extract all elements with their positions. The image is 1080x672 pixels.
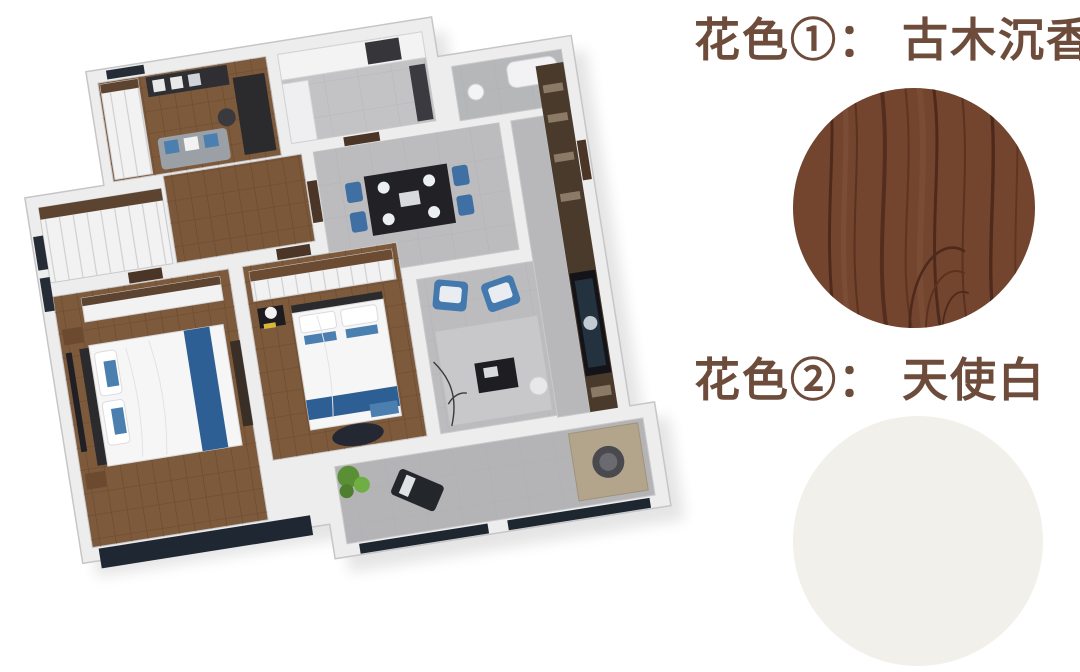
swatch2-label: 花色②：天使白 bbox=[694, 356, 1080, 407]
dining-chair bbox=[345, 181, 364, 203]
dining-chair bbox=[349, 211, 368, 233]
swatch1-prefix: 花色①： bbox=[694, 15, 886, 66]
nightstand bbox=[62, 327, 84, 346]
swatch1-name: 古木沉香 bbox=[902, 15, 1080, 66]
second-bedroom bbox=[242, 242, 427, 460]
armchair bbox=[432, 279, 468, 312]
swatch2-prefix: 花色②： bbox=[694, 355, 886, 406]
dining-chair bbox=[456, 194, 475, 216]
apartment bbox=[7, 0, 685, 614]
wood-grain-graphic bbox=[792, 87, 1036, 329]
bed bbox=[291, 291, 402, 430]
nightstand bbox=[85, 471, 107, 490]
floorplan-image bbox=[0, 0, 700, 667]
dining-chair bbox=[451, 164, 470, 186]
swatch2-white-circle bbox=[793, 416, 1043, 666]
swatch1-wood-circle bbox=[792, 87, 1036, 329]
floorplan-svg bbox=[0, 0, 700, 667]
living-room bbox=[416, 261, 557, 434]
swatch2-name: 天使白 bbox=[902, 355, 1046, 406]
page: 花色①：古木沉香 bbox=[0, 0, 1080, 667]
swatch1-label: 花色①：古木沉香 bbox=[694, 16, 1080, 67]
